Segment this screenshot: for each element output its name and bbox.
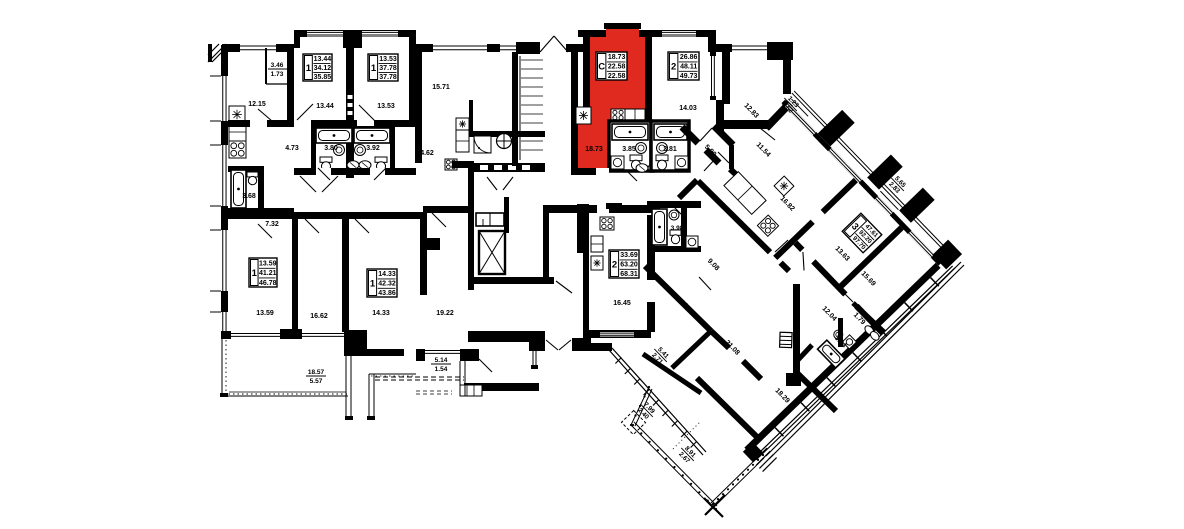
svg-text:18.57: 18.57	[308, 369, 325, 376]
svg-text:1.54: 1.54	[435, 366, 448, 373]
svg-text:1: 1	[371, 63, 377, 74]
svg-text:4.73: 4.73	[285, 145, 299, 152]
svg-text:13.59: 13.59	[256, 310, 274, 317]
svg-text:13.44: 13.44	[314, 56, 332, 63]
svg-text:16.62: 16.62	[310, 313, 328, 320]
svg-text:18.73: 18.73	[585, 146, 603, 153]
svg-text:1.73: 1.73	[271, 71, 284, 78]
svg-text:5.57: 5.57	[310, 378, 323, 385]
svg-text:13.59: 13.59	[259, 260, 277, 267]
svg-text:14.33: 14.33	[378, 271, 396, 278]
svg-text:1: 1	[370, 279, 376, 290]
svg-text:3.98: 3.98	[671, 225, 684, 232]
svg-text:3.46: 3.46	[271, 62, 284, 69]
svg-text:26.86: 26.86	[680, 54, 698, 61]
svg-text:18.73: 18.73	[608, 54, 626, 61]
svg-text:22.58: 22.58	[608, 73, 626, 80]
svg-text:2: 2	[612, 260, 617, 271]
svg-text:46.78: 46.78	[259, 280, 277, 287]
svg-text:С: С	[598, 62, 605, 73]
svg-text:2: 2	[671, 62, 676, 73]
svg-text:14.03: 14.03	[679, 105, 697, 112]
svg-text:1: 1	[252, 268, 258, 279]
svg-text:14.33: 14.33	[372, 310, 390, 317]
svg-text:41.21: 41.21	[259, 270, 277, 277]
svg-text:13.44: 13.44	[316, 103, 334, 110]
svg-text:3.85: 3.85	[622, 146, 636, 153]
svg-text:49.73: 49.73	[680, 73, 698, 80]
svg-text:63.20: 63.20	[620, 261, 638, 268]
svg-text:12.15: 12.15	[248, 101, 266, 108]
svg-text:43.86: 43.86	[378, 290, 396, 297]
svg-text:35.85: 35.85	[314, 74, 332, 81]
svg-text:7.32: 7.32	[265, 221, 279, 228]
svg-text:3.80: 3.80	[324, 145, 338, 152]
svg-text:13.53: 13.53	[377, 103, 395, 110]
svg-text:48.11: 48.11	[680, 63, 697, 70]
svg-text:13.53: 13.53	[379, 56, 397, 63]
svg-text:33.69: 33.69	[620, 252, 638, 259]
svg-text:15.71: 15.71	[432, 84, 450, 91]
svg-text:42.32: 42.32	[378, 280, 396, 287]
svg-text:5.14: 5.14	[435, 357, 448, 364]
svg-text:4.62: 4.62	[420, 150, 434, 157]
svg-text:19.22: 19.22	[436, 310, 454, 317]
svg-text:3.68: 3.68	[242, 193, 256, 200]
svg-text:68.31: 68.31	[620, 271, 638, 278]
svg-text:22.58: 22.58	[608, 63, 626, 70]
svg-text:1: 1	[306, 63, 312, 74]
svg-text:3.92: 3.92	[366, 145, 380, 152]
svg-text:16.45: 16.45	[613, 300, 631, 307]
svg-text:34.12: 34.12	[314, 65, 332, 72]
svg-text:37.78: 37.78	[379, 65, 397, 72]
svg-text:37.78: 37.78	[379, 74, 397, 81]
svg-text:3.81: 3.81	[663, 146, 677, 153]
